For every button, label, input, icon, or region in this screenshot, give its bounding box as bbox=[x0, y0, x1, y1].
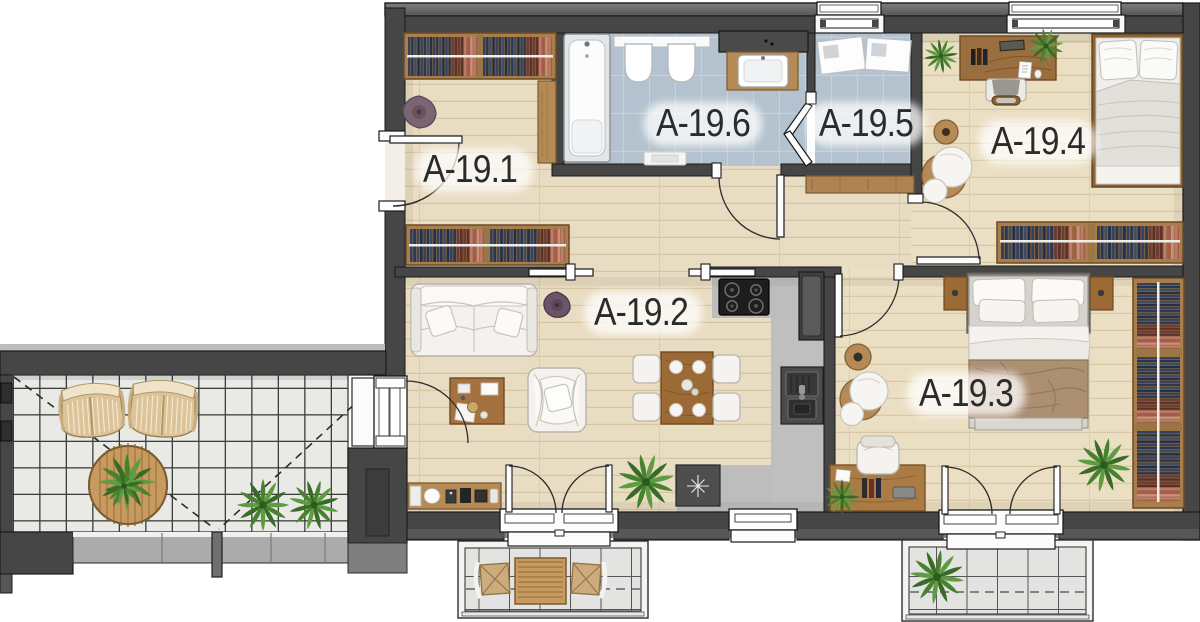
svg-text:A-19.2: A-19.2 bbox=[594, 291, 688, 334]
svg-text:A-19.6: A-19.6 bbox=[656, 102, 750, 145]
svg-text:A-19.3: A-19.3 bbox=[919, 372, 1013, 415]
svg-text:A-19.5: A-19.5 bbox=[819, 102, 913, 145]
svg-text:A-19.1: A-19.1 bbox=[423, 148, 517, 191]
svg-text:A-19.4: A-19.4 bbox=[991, 120, 1085, 163]
